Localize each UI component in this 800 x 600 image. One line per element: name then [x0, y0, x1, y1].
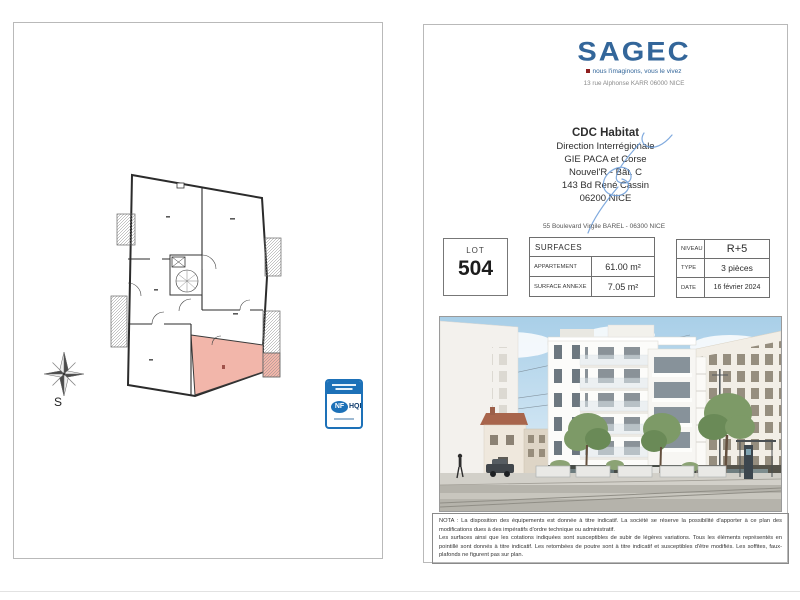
surfaces-header: SURFACES [530, 238, 655, 257]
nota-paragraph: Les surfaces ainsi que les cotations ind… [439, 534, 782, 560]
details-row-value: R+5 [705, 240, 770, 259]
compass-south-label: S [54, 395, 62, 409]
sagec-tagline: nous l'imaginons, vous le vivez [524, 68, 744, 75]
project-address: 55 Boulevard Virgile BAREL - 06300 NICE [484, 223, 724, 230]
red-square-icon [586, 69, 590, 73]
nota-paragraph: NOTA : La disposition des équipements es… [439, 517, 782, 534]
building-photo [439, 316, 782, 512]
plan-notch [177, 183, 184, 188]
details-row-value: 16 février 2024 [705, 278, 770, 298]
staircase [170, 255, 202, 295]
sagec-logo-text: SAGEC [524, 38, 744, 66]
lot-504-highlight [191, 335, 263, 395]
compass-rose-icon [42, 351, 86, 397]
badge-header-band [327, 381, 361, 394]
details-row-label: TYPE [677, 259, 705, 278]
lot-label: LOT [444, 246, 507, 255]
recipient-line: 06200 NICE [424, 192, 787, 205]
surfaces-row-label: SURFACE ANNEXE [530, 277, 592, 297]
details-row-value: 3 pièces [705, 259, 770, 278]
recipient-line: CDC Habitat [424, 126, 787, 140]
recipient-line: Nouvel'R - Bât. C [424, 166, 787, 179]
badge-subtext-bar [334, 418, 354, 420]
recipient-line: Direction Interrégionale [424, 140, 787, 153]
details-row-label: DATE [677, 278, 705, 298]
details-table: NIVEAU R+5 TYPE 3 pièces DATE 16 février… [676, 239, 770, 298]
surfaces-row-label: APPARTEMENT [530, 257, 592, 277]
nf-logo: NF [331, 401, 348, 413]
scan-artifact-line [0, 591, 800, 592]
lot-box: LOT 504 [443, 238, 508, 296]
sagec-address: 13 rue Alphonse KARR 06000 NICE [524, 80, 744, 87]
recipient-line: 143 Bd René Cassin [424, 179, 787, 192]
surfaces-row-value: 7.05 m² [592, 277, 655, 297]
lot-info-page: SAGEC nous l'imaginons, vous le vivez 13… [423, 24, 788, 563]
hqe-label: HQE [349, 403, 363, 410]
nota-disclaimer: NOTA : La disposition des équipements es… [432, 513, 789, 564]
street [440, 473, 781, 511]
recipient-address-block: CDC Habitat Direction Interrégionale GIE… [424, 126, 787, 205]
surfaces-table: SURFACES APPARTEMENT 61.00 m² SURFACE AN… [529, 237, 655, 297]
lot-number: 504 [444, 257, 507, 281]
floor-plan [92, 159, 314, 421]
floor-plan-page: S NF HQE [13, 22, 383, 559]
surfaces-row-value: 61.00 m² [592, 257, 655, 277]
nf-hqe-certification-badge: NF HQE [325, 379, 363, 429]
recipient-line: GIE PACA et Corse [424, 153, 787, 166]
details-row-label: NIVEAU [677, 240, 705, 259]
sagec-logo: SAGEC nous l'imaginons, vous le vivez 13… [524, 37, 744, 87]
